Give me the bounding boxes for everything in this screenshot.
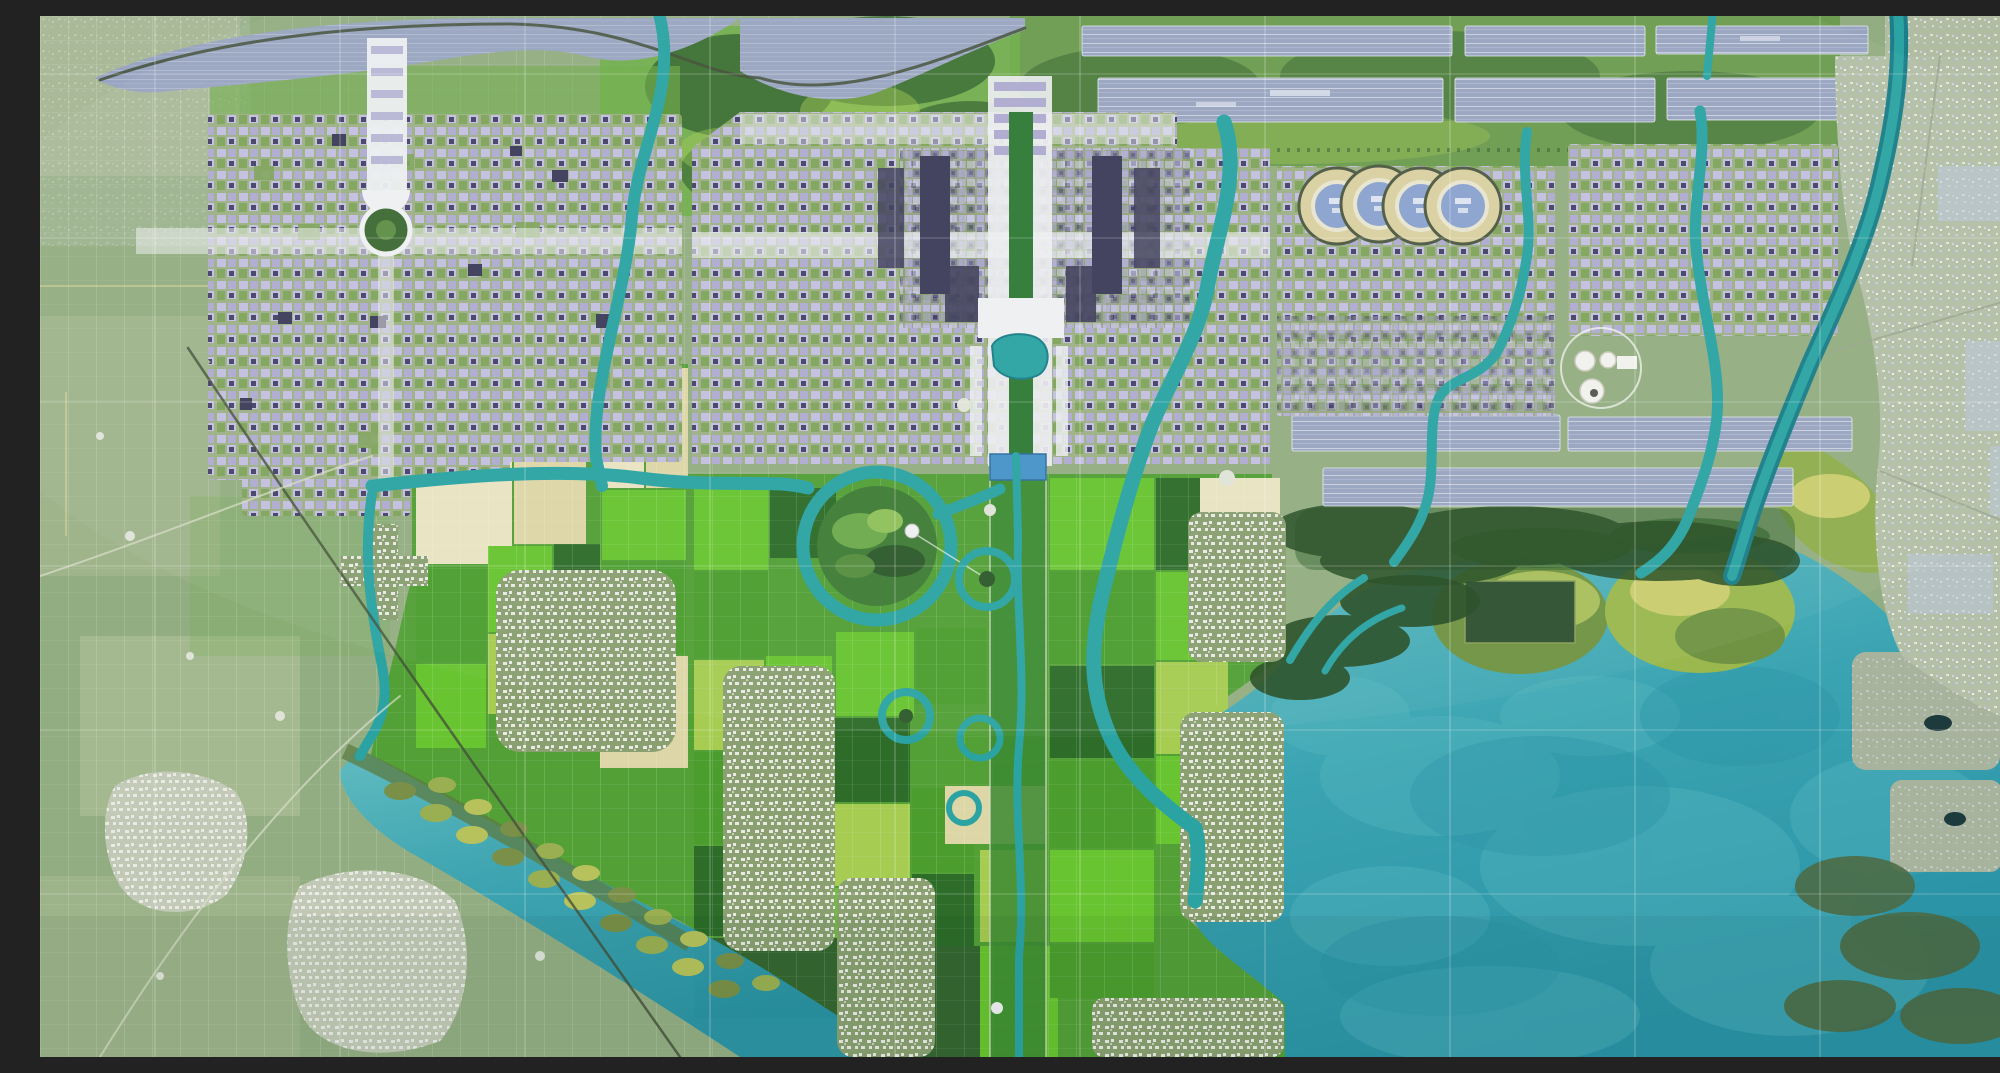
masterplan-map <box>40 16 2000 1057</box>
satellite-map-canvas <box>40 16 2000 1057</box>
village-texture <box>105 771 247 912</box>
